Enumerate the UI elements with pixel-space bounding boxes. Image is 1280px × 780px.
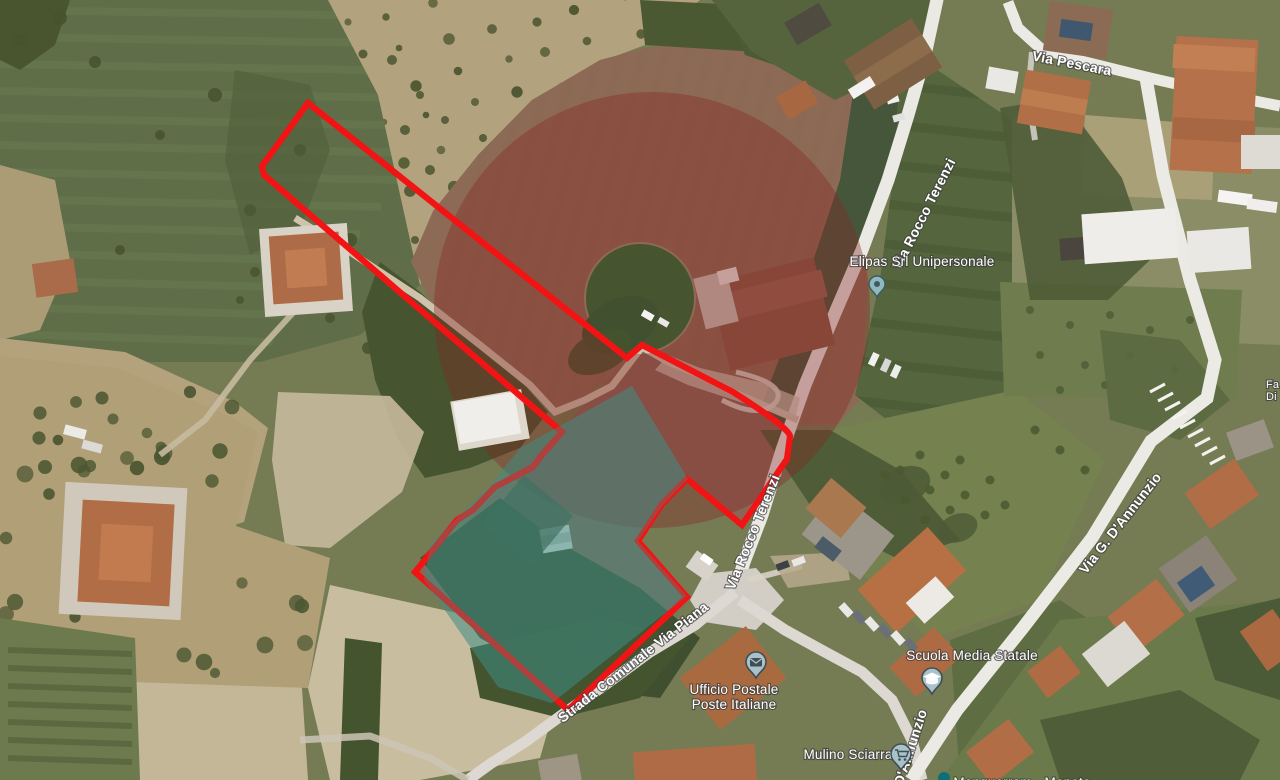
svg-text:Scuola Media Statale: Scuola Media Statale <box>906 648 1038 663</box>
svg-text:Elipas Srl Unipersonale: Elipas Srl Unipersonale <box>850 254 995 269</box>
svg-text:Mulino Sciarra: Mulino Sciarra <box>803 747 892 762</box>
svg-text:Fa: Fa <box>1266 379 1280 391</box>
svg-text:Monguerram - Monete: Monguerram - Monete <box>953 775 1090 780</box>
svg-text:Ufficio Postale: Ufficio Postale <box>689 682 778 697</box>
svg-text:Poste Italiane: Poste Italiane <box>692 697 777 712</box>
svg-text:Di: Di <box>1266 391 1277 403</box>
